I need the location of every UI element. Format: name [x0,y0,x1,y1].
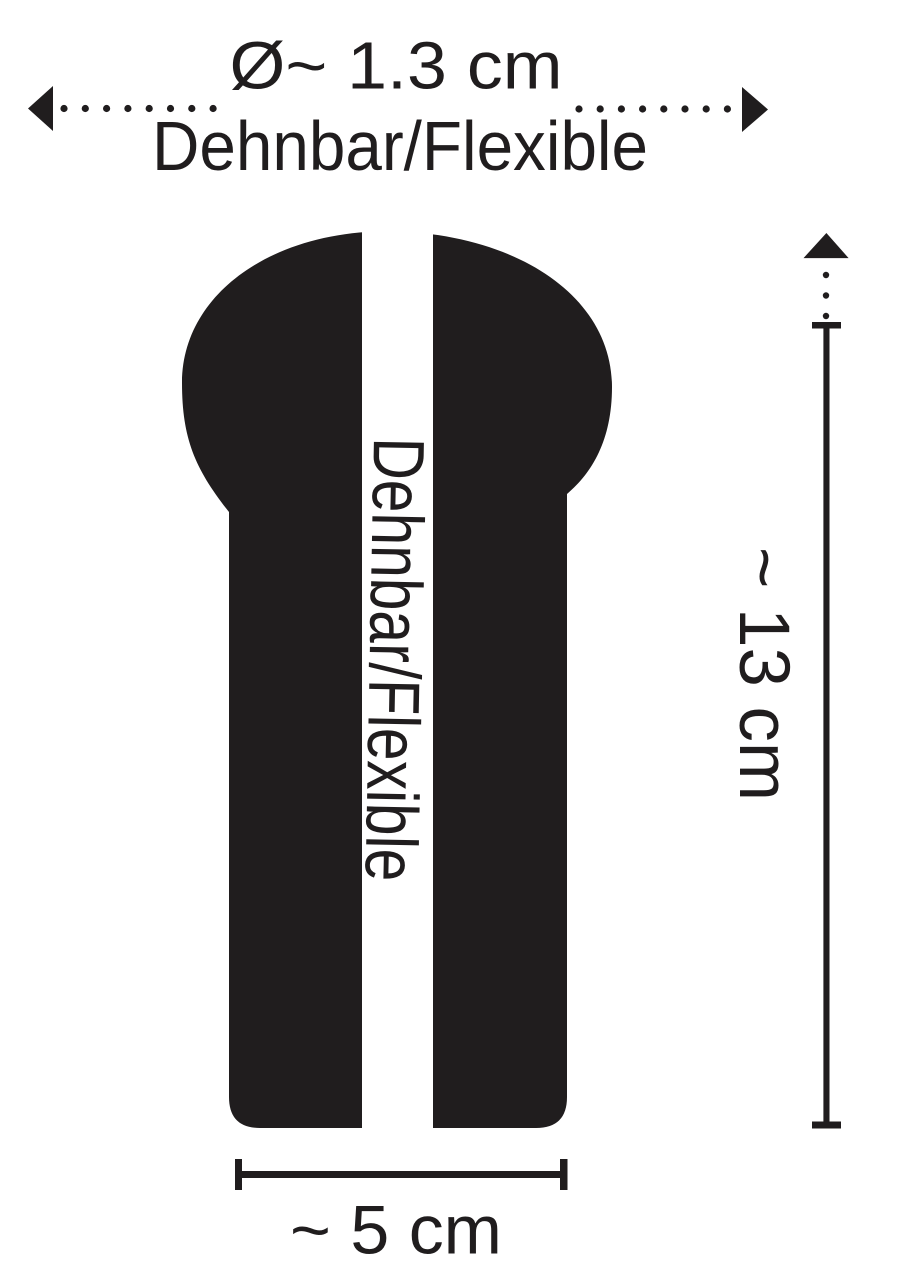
svg-text:~ 13 cm: ~ 13 cm [724,547,803,801]
svg-text:Dehnbar/Flexible: Dehnbar/Flexible [349,437,439,882]
svg-text:~ 5 cm: ~ 5 cm [290,1192,502,1269]
svg-text:Dehnbar/Flexible: Dehnbar/Flexible [152,107,648,185]
svg-text:Ø~ 1.3 cm: Ø~ 1.3 cm [230,30,563,104]
